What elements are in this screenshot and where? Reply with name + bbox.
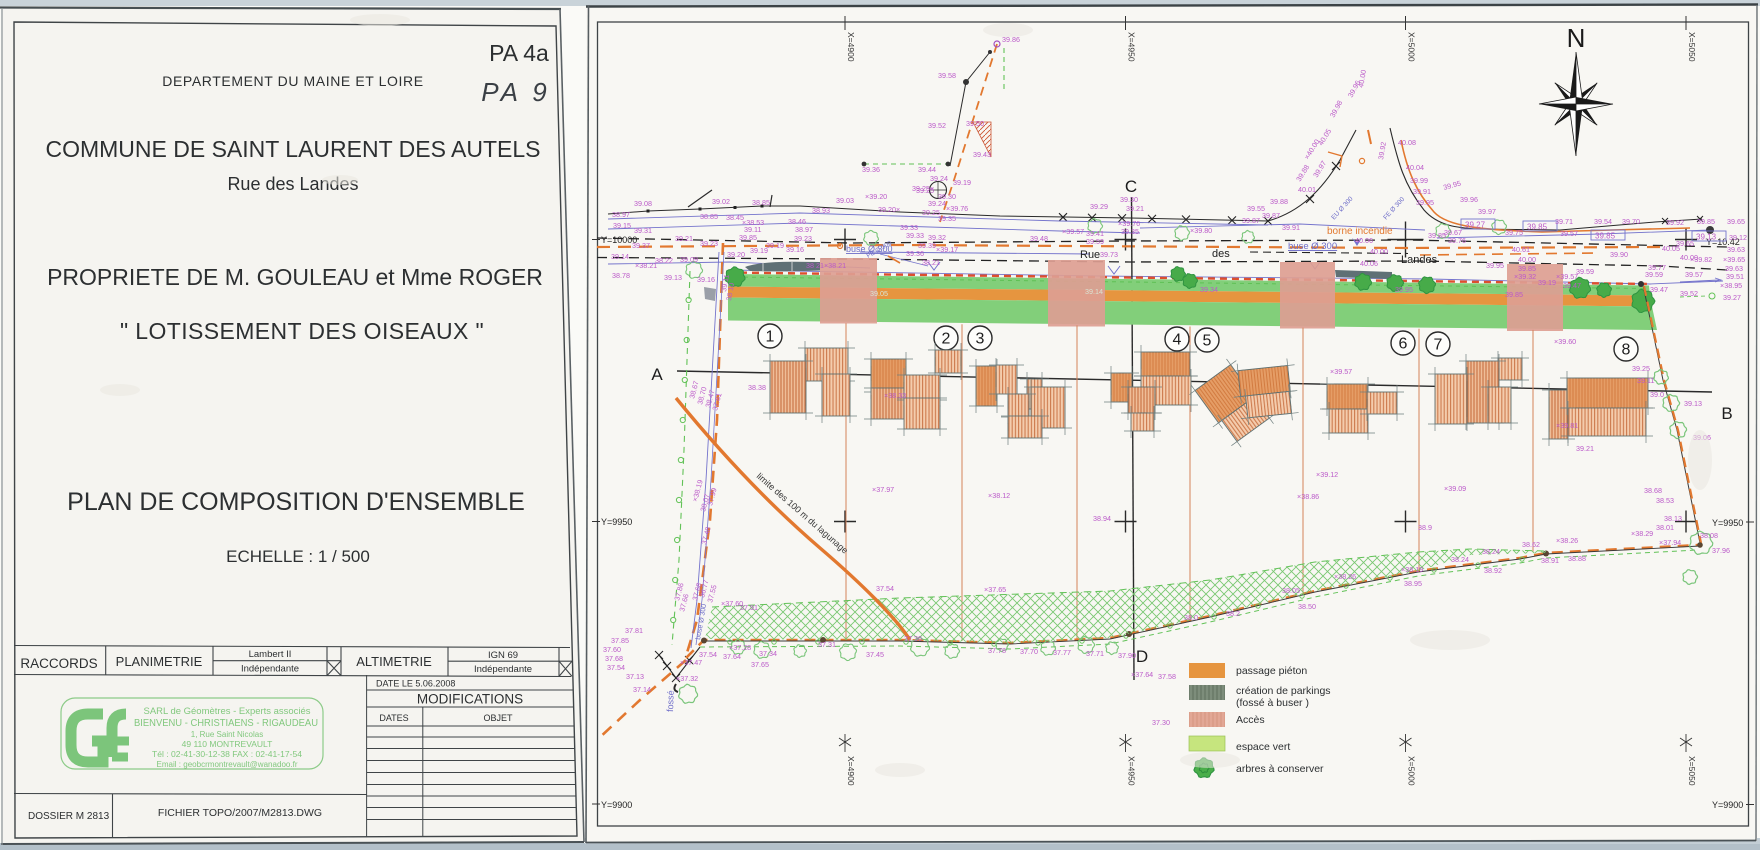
- svg-text:Email : geobcrmontrevault@wana: Email : geobcrmontrevault@wanadoo.fr: [157, 760, 298, 769]
- svg-text:39.16: 39.16: [786, 245, 804, 254]
- svg-text:37.96: 37.96: [1712, 546, 1730, 555]
- svg-text:39.99: 39.99: [1410, 176, 1428, 185]
- svg-text:PLANIMETRIE: PLANIMETRIE: [116, 654, 203, 669]
- svg-text:39.95: 39.95: [1486, 261, 1504, 270]
- svg-text:40.00: 40.00: [1370, 247, 1388, 256]
- svg-text:39.70: 39.70: [1622, 217, 1640, 226]
- svg-text:39.35: 39.35: [1121, 227, 1139, 236]
- svg-text:39.48: 39.48: [1030, 234, 1048, 243]
- svg-text:39.13: 39.13: [1696, 233, 1717, 242]
- svg-text:3: 3: [976, 331, 985, 348]
- svg-text:38.88: 38.88: [1568, 554, 1586, 563]
- svg-text:37.58: 37.58: [1158, 672, 1176, 681]
- svg-text:X=4950: X=4950: [1127, 756, 1137, 786]
- svg-text:RACCORDS: RACCORDS: [20, 656, 97, 671]
- svg-text:B: B: [1721, 404, 1732, 423]
- svg-text:39.91: 39.91: [1413, 187, 1431, 196]
- svg-text:×39.57: ×39.57: [1556, 272, 1578, 281]
- svg-text:39.95: 39.95: [1416, 198, 1434, 207]
- svg-text:38.92: 38.92: [1484, 566, 1502, 575]
- svg-text:X=4900: X=4900: [846, 32, 856, 62]
- svg-text:buse Ø 300: buse Ø 300: [1288, 241, 1337, 252]
- svg-text:38.85: 38.85: [752, 198, 770, 207]
- svg-text:39.87: 39.87: [1262, 211, 1280, 220]
- svg-text:39.34: 39.34: [1200, 285, 1218, 294]
- svg-text:Indépendante: Indépendante: [474, 664, 532, 675]
- svg-text:Y=9900: Y=9900: [601, 800, 632, 810]
- svg-text:39.16: 39.16: [697, 275, 715, 284]
- svg-text:×38.26: ×38.26: [1334, 572, 1356, 581]
- svg-text:37.71: 37.71: [1086, 649, 1104, 658]
- svg-text:×39.81: ×39.81: [1556, 421, 1578, 430]
- svg-text:N: N: [1567, 23, 1586, 53]
- svg-text:37.78: 37.78: [988, 646, 1006, 655]
- svg-text:38.05: 38.05: [1282, 586, 1300, 595]
- svg-text:38.62: 38.62: [1522, 540, 1540, 549]
- svg-text:39.30: 39.30: [1120, 195, 1138, 204]
- svg-text:39.21: 39.21: [1576, 444, 1594, 453]
- svg-text:IGN 69: IGN 69: [488, 650, 518, 661]
- svg-text:40.01: 40.01: [1298, 185, 1316, 194]
- svg-text:×38.86: ×38.86: [1297, 492, 1319, 501]
- svg-text:39.13: 39.13: [1684, 399, 1702, 408]
- svg-text:39.91: 39.91: [1282, 223, 1300, 232]
- svg-text:DATES: DATES: [379, 713, 408, 723]
- svg-text:×39.12: ×39.12: [1316, 470, 1338, 479]
- svg-text:40.06: 40.06: [1360, 259, 1378, 268]
- svg-text:39.37: 39.37: [632, 241, 650, 250]
- svg-text:39.09: 39.09: [680, 255, 698, 264]
- svg-text:×37.47: ×37.47: [680, 658, 702, 667]
- svg-text:×37.97: ×37.97: [872, 485, 894, 494]
- svg-text:FICHIER TOPO/2007/M2813.DWG: FICHIER TOPO/2007/M2813.DWG: [158, 807, 322, 819]
- svg-text:ECHELLE : 1 / 500: ECHELLE : 1 / 500: [226, 547, 370, 566]
- svg-text:5: 5: [1203, 333, 1212, 350]
- svg-text:39.96: 39.96: [1460, 195, 1478, 204]
- svg-text:38.24: 38.24: [1451, 555, 1469, 564]
- svg-text:38.68: 38.68: [1644, 486, 1662, 495]
- svg-text:37.31: 37.31: [818, 640, 836, 649]
- svg-text:×38.29: ×38.29: [1631, 529, 1653, 538]
- svg-text:DOSSIER M 2813: DOSSIER M 2813: [28, 811, 110, 822]
- svg-text:39.47: 39.47: [1650, 285, 1668, 294]
- svg-text:×39.17: ×39.17: [936, 245, 958, 254]
- svg-text:39.97: 39.97: [1478, 207, 1496, 216]
- svg-text:39.36: 39.36: [862, 165, 880, 174]
- svg-text:38.94: 38.94: [1093, 514, 1111, 523]
- svg-text:ALTIMETRIE: ALTIMETRIE: [356, 654, 432, 669]
- svg-text:39.75: 39.75: [1505, 228, 1523, 237]
- svg-text:×39.09: ×39.09: [1444, 484, 1466, 493]
- svg-text:X=5000: X=5000: [1407, 32, 1417, 62]
- svg-text:37.36: 37.36: [904, 634, 922, 643]
- svg-text:39.23: 39.23: [794, 234, 812, 243]
- svg-text:BIENVENU - CHRISTIAENS - RIGAU: BIENVENU - CHRISTIAENS - RIGAUDEAU: [134, 718, 318, 729]
- svg-text:Tél : 02-41-30-12-38 FAX : 02-: Tél : 02-41-30-12-38 FAX : 02-41-17-54: [152, 749, 302, 759]
- svg-text:39.24: 39.24: [930, 174, 948, 183]
- svg-text:×39.65: ×39.65: [1723, 255, 1745, 264]
- svg-text:39.35: 39.35: [938, 214, 956, 223]
- svg-text:X=4900: X=4900: [846, 756, 856, 786]
- svg-text:39.85: 39.85: [1595, 232, 1616, 241]
- svg-text:1, Rue Saint Nicolas: 1, Rue Saint Nicolas: [191, 730, 263, 739]
- svg-text:×39.20: ×39.20: [865, 192, 887, 201]
- svg-text:39.54: 39.54: [1594, 217, 1612, 226]
- svg-text:×39.57: ×39.57: [1062, 227, 1084, 236]
- svg-text:39.12: 39.12: [1729, 233, 1747, 242]
- svg-text:38.9: 38.9: [1418, 523, 1432, 532]
- svg-text:Indépendante: Indépendante: [241, 664, 299, 675]
- svg-text:39.21: 39.21: [1126, 204, 1144, 213]
- svg-text:38.78: 38.78: [612, 271, 630, 280]
- svg-text:×37.28: ×37.28: [729, 643, 751, 652]
- svg-text:40.04: 40.04: [1406, 163, 1424, 172]
- svg-text:37.54: 37.54: [876, 584, 894, 593]
- svg-text:39.29: 39.29: [1090, 202, 1108, 211]
- svg-text:OBJET: OBJET: [483, 713, 513, 723]
- svg-text:×37.94: ×37.94: [1659, 538, 1681, 547]
- svg-text:PLAN DE COMPOSITION D'ENSEMBLE: PLAN DE COMPOSITION D'ENSEMBLE: [67, 488, 525, 516]
- svg-text:38.22: 38.22: [655, 256, 673, 265]
- svg-text:39.85: 39.85: [1505, 290, 1523, 299]
- svg-text:39.92: 39.92: [1666, 218, 1684, 227]
- svg-text:des: des: [1212, 248, 1230, 260]
- svg-text:4: 4: [1173, 332, 1182, 349]
- svg-text:×37.64: ×37.64: [1131, 670, 1153, 679]
- svg-text:39.27: 39.27: [1465, 221, 1486, 230]
- svg-text:(fossé à buser ): (fossé à buser ): [1236, 697, 1309, 709]
- svg-text:49 110 MONTREVAULT: 49 110 MONTREVAULT: [182, 739, 273, 749]
- svg-text:39.50: 39.50: [966, 119, 984, 128]
- svg-text:38.13: 38.13: [1664, 514, 1682, 523]
- svg-text:37.54: 37.54: [607, 663, 625, 672]
- svg-text:39.13: 39.13: [664, 273, 682, 282]
- svg-text:39.85: 39.85: [1527, 223, 1548, 232]
- svg-text:X=5000: X=5000: [1407, 756, 1417, 786]
- svg-text:PROPRIETE DE M. GOULEAU et Mme: PROPRIETE DE M. GOULEAU et Mme ROGER: [47, 264, 543, 290]
- svg-text:39.25: 39.25: [1632, 364, 1650, 373]
- svg-text:39.31: 39.31: [634, 226, 652, 235]
- svg-text:37.64: 37.64: [723, 652, 741, 661]
- svg-text:39.08: 39.08: [634, 199, 652, 208]
- svg-text:DATE LE 5.06.2008: DATE LE 5.06.2008: [376, 679, 455, 689]
- svg-text:39.88: 39.88: [1270, 197, 1288, 206]
- svg-text:40.08: 40.08: [1398, 138, 1416, 147]
- svg-text:×39.57: ×39.57: [1330, 367, 1352, 376]
- svg-text:passage piéton: passage piéton: [1236, 665, 1307, 677]
- svg-text:1: 1: [766, 329, 775, 346]
- svg-text:6: 6: [1399, 336, 1408, 353]
- svg-text:SARL de Géomètres - Experts as: SARL de Géomètres - Experts associés: [144, 706, 311, 717]
- svg-text:" LOTISSEMENT DES OISEAUX ": " LOTISSEMENT DES OISEAUX ": [120, 318, 484, 344]
- svg-text:39.85: 39.85: [1697, 217, 1715, 226]
- svg-text:39.59: 39.59: [1576, 267, 1594, 276]
- svg-text:39.19: 39.19: [953, 178, 971, 187]
- svg-text:38.38: 38.38: [748, 383, 766, 392]
- svg-text:Rue: Rue: [1080, 249, 1100, 261]
- svg-text:×39.80: ×39.80: [1190, 226, 1212, 235]
- svg-text:39.59: 39.59: [1086, 237, 1104, 246]
- svg-text:39.21: 39.21: [675, 234, 693, 243]
- svg-text:39.51: 39.51: [1726, 272, 1744, 281]
- svg-text:39.19: 39.19: [766, 241, 784, 250]
- svg-text:38.95: 38.95: [1404, 579, 1422, 588]
- svg-text:38.50: 38.50: [1298, 602, 1316, 611]
- svg-text:PA 4a: PA 4a: [489, 40, 549, 66]
- svg-text:38.08: 38.08: [1700, 531, 1718, 540]
- svg-text:×37.65: ×37.65: [984, 585, 1006, 594]
- svg-text:37.30: 37.30: [1152, 718, 1170, 727]
- svg-text:38.85: 38.85: [700, 212, 718, 221]
- svg-text:37.45: 37.45: [866, 650, 884, 659]
- svg-text:39.05: 39.05: [870, 289, 888, 298]
- svg-text:37.85: 37.85: [611, 636, 629, 645]
- svg-text:×37.32: ×37.32: [676, 674, 698, 683]
- svg-text:39.15: 39.15: [613, 221, 631, 230]
- svg-text:Lambert II: Lambert II: [249, 649, 292, 660]
- svg-text:38.2: 38.2: [1226, 609, 1240, 618]
- svg-text:MODIFICATIONS: MODIFICATIONS: [417, 692, 523, 707]
- svg-text:Accès: Accès: [1236, 714, 1265, 726]
- svg-text:39.71: 39.71: [1555, 217, 1573, 226]
- svg-text:38.97: 38.97: [795, 225, 813, 234]
- svg-text:37.13: 37.13: [626, 672, 644, 681]
- svg-text:39.57: 39.57: [1685, 270, 1703, 279]
- svg-text:X=4950: X=4950: [1127, 32, 1137, 62]
- svg-text:8: 8: [1622, 342, 1631, 359]
- svg-text:39.87: 39.87: [1242, 216, 1260, 225]
- svg-text:39.43: 39.43: [973, 150, 991, 159]
- svg-text:38.24: 38.24: [1482, 547, 1500, 556]
- svg-text:39.23: 39.23: [700, 239, 718, 248]
- svg-text:espace vert: espace vert: [1236, 741, 1290, 753]
- svg-text:38.93: 38.93: [812, 206, 830, 215]
- svg-text:39.27: 39.27: [1723, 293, 1741, 302]
- svg-text:D: D: [1136, 647, 1148, 666]
- svg-text:39.95: 39.95: [1395, 285, 1413, 294]
- svg-text:39.47: 39.47: [1563, 281, 1581, 290]
- svg-text:37.91: 37.91: [740, 603, 758, 612]
- svg-text:arbres à conserver: arbres à conserver: [1236, 763, 1324, 775]
- svg-text:×38.21: ×38.21: [635, 261, 657, 270]
- svg-text:×38.12: ×38.12: [988, 491, 1010, 500]
- svg-text:37.90: 37.90: [1118, 651, 1136, 660]
- svg-text:X=5050: X=5050: [1687, 32, 1697, 62]
- svg-text:39.76: 39.76: [1448, 236, 1466, 245]
- svg-text:PA 9: PA 9: [481, 77, 550, 107]
- svg-text:38.0: 38.0: [1184, 613, 1198, 622]
- svg-text:39.03: 39.03: [836, 196, 854, 205]
- svg-text:39.59: 39.59: [1645, 270, 1663, 279]
- svg-text:38.53: 38.53: [1656, 496, 1674, 505]
- svg-text:38 21×38.21: 38 21×38.21: [806, 261, 846, 270]
- svg-text:39.19: 39.19: [1538, 278, 1556, 287]
- svg-text:39.52: 39.52: [928, 121, 946, 130]
- svg-text:38.45: 38.45: [726, 213, 744, 222]
- svg-text:39.44: 39.44: [918, 165, 936, 174]
- svg-text:Y=9900: Y=9900: [1712, 800, 1743, 810]
- svg-text:2: 2: [942, 331, 951, 348]
- svg-text:fossé: fossé: [665, 690, 676, 712]
- svg-text:37.60: 37.60: [603, 645, 621, 654]
- svg-text:×38.33: ×38.33: [884, 391, 906, 400]
- svg-text:39.20×: 39.20×: [878, 205, 900, 214]
- svg-text:X=5050: X=5050: [1687, 756, 1697, 786]
- svg-text:40.00: 40.00: [1680, 253, 1698, 262]
- svg-text:39.85: 39.85: [739, 233, 757, 242]
- svg-text:C: C: [1125, 177, 1137, 196]
- svg-text:40.00: 40.00: [1518, 255, 1536, 264]
- svg-text:37.34: 37.34: [759, 649, 777, 658]
- svg-text:Y=9950: Y=9950: [1712, 518, 1743, 528]
- svg-text:création de parkings: création de parkings: [1236, 685, 1331, 697]
- svg-text:39.14: 39.14: [611, 252, 629, 261]
- svg-text:37.77: 37.77: [1053, 648, 1071, 657]
- svg-text:Y=9950: Y=9950: [601, 517, 632, 527]
- svg-text:A: A: [651, 365, 663, 384]
- svg-text:39.52: 39.52: [1680, 289, 1698, 298]
- svg-text:39.0: 39.0: [1650, 390, 1664, 399]
- svg-text:39.11: 39.11: [1637, 376, 1654, 385]
- svg-text:DEPARTEMENT DU MAINE ET LOIRE: DEPARTEMENT DU MAINE ET LOIRE: [162, 73, 423, 89]
- svg-text:38.91: 38.91: [1541, 556, 1559, 565]
- svg-text:×39.32: ×39.32: [1514, 272, 1536, 281]
- svg-text:39.25×: 39.25×: [912, 184, 934, 193]
- svg-text:39.30: 39.30: [938, 192, 956, 201]
- svg-text:39.65: 39.65: [1727, 217, 1745, 226]
- svg-text:×38.19: ×38.19: [1401, 565, 1423, 574]
- svg-text:37.14: 37.14: [633, 685, 651, 694]
- svg-text:39.57: 39.57: [1560, 229, 1578, 238]
- svg-text:Landes: Landes: [1401, 254, 1438, 266]
- svg-text:37.65: 37.65: [751, 660, 769, 669]
- svg-text:COMMUNE DE SAINT LAURENT DES A: COMMUNE DE SAINT LAURENT DES AUTELS: [45, 136, 540, 162]
- svg-text:38.01: 38.01: [1656, 523, 1674, 532]
- svg-text:39.73: 39.73: [1100, 250, 1118, 259]
- svg-text:37.81: 37.81: [625, 626, 643, 635]
- svg-text:×38.95: ×38.95: [1720, 281, 1742, 290]
- svg-text:39.02: 39.02: [712, 197, 730, 206]
- svg-text:39.63: 39.63: [1727, 245, 1745, 254]
- svg-text:37.68: 37.68: [605, 654, 623, 663]
- svg-text:7: 7: [1434, 337, 1443, 354]
- svg-text:39.33: 39.33: [906, 231, 924, 240]
- svg-text:40.06: 40.06: [1355, 236, 1373, 245]
- svg-text:39.20: 39.20: [727, 250, 745, 259]
- svg-text:38.21: 38.21: [922, 258, 940, 267]
- svg-text:37.70: 37.70: [1020, 647, 1038, 656]
- svg-text:×39.76: ×39.76: [946, 204, 968, 213]
- svg-text:39.14: 39.14: [1085, 287, 1103, 296]
- svg-text:38.97: 38.97: [612, 210, 630, 219]
- svg-text:40.61: 40.61: [1512, 245, 1530, 254]
- svg-text:39.58: 39.58: [938, 71, 956, 80]
- svg-text:×38.26: ×38.26: [1556, 536, 1578, 545]
- svg-text:37.54: 37.54: [699, 650, 717, 659]
- svg-text:39.36: 39.36: [906, 249, 924, 258]
- svg-text:39.90: 39.90: [1610, 250, 1628, 259]
- svg-text:×39.60: ×39.60: [1554, 337, 1576, 346]
- svg-text:40.05: 40.05: [1662, 244, 1680, 253]
